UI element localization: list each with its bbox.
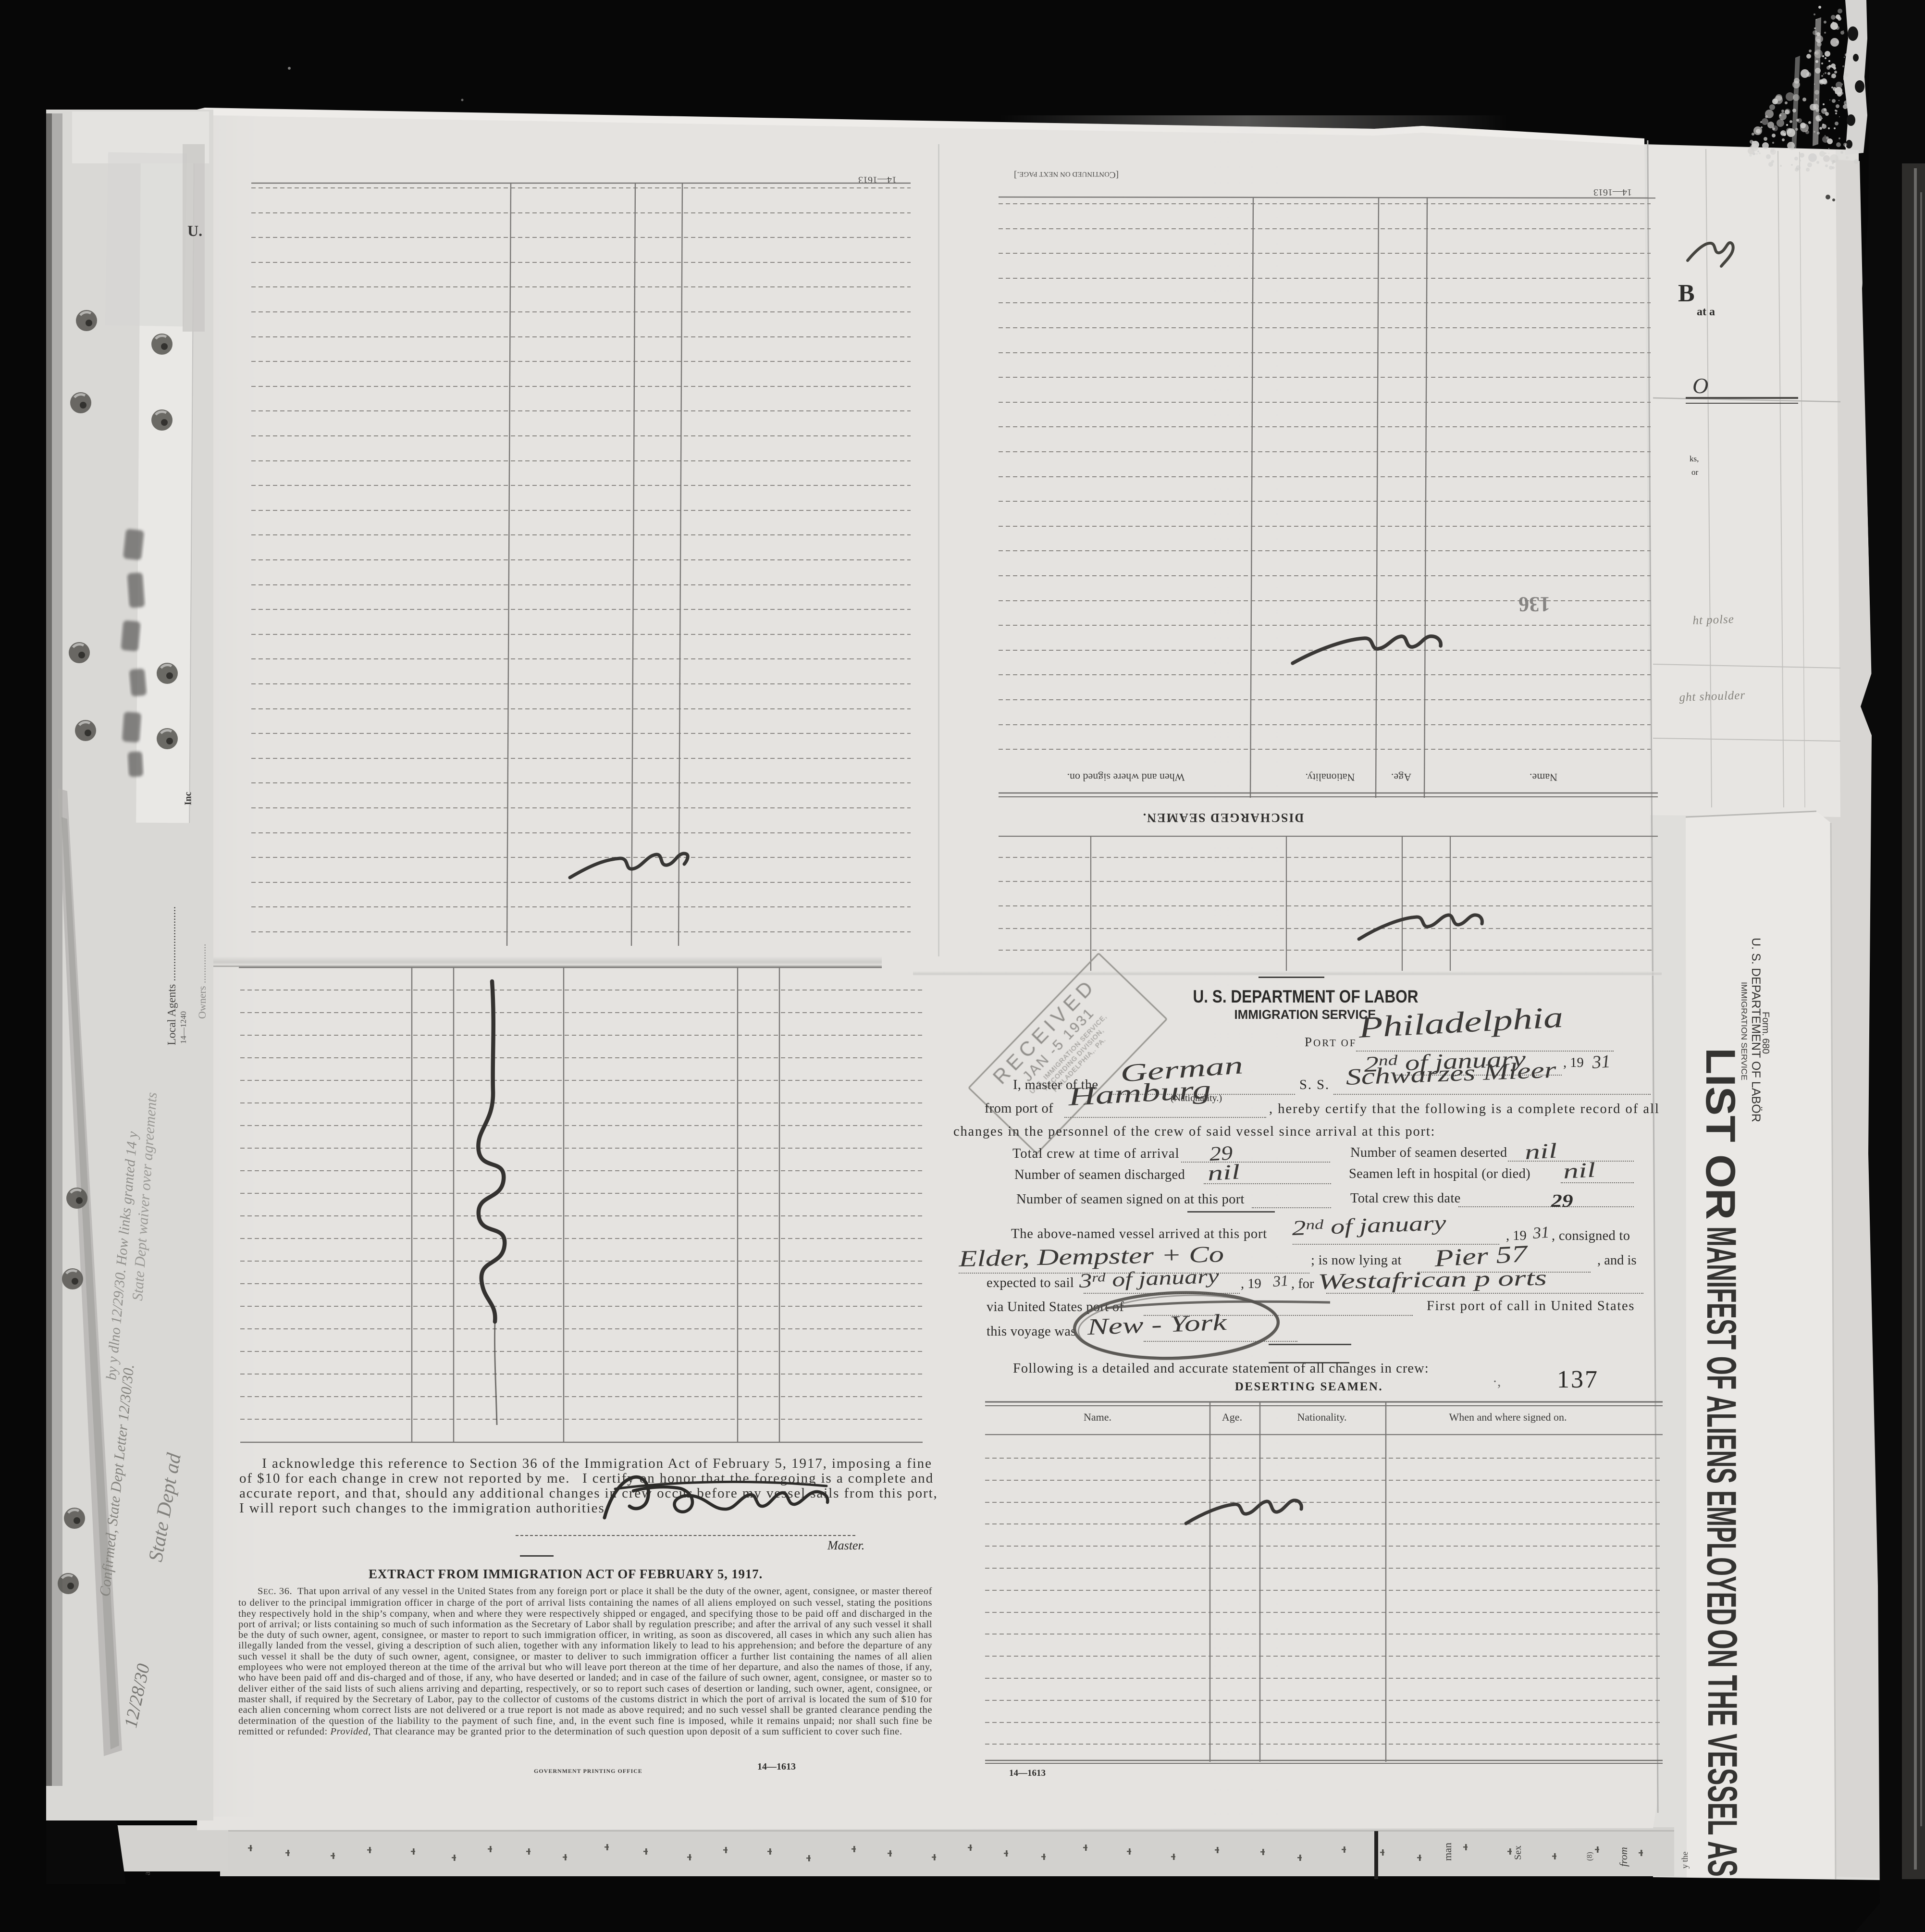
svg-text:U. S. DEPARTEMENT OF LABÖR: U. S. DEPARTEMENT OF LABÖR <box>1749 938 1763 1122</box>
svg-text:IMMIGRATION SERVICE: IMMIGRATION SERVICE <box>1234 1007 1376 1022</box>
svg-text:LIST OR: LIST OR <box>1697 1048 1743 1220</box>
svg-text:U. S. DEPARTMENT OF LABOR: U. S. DEPARTMENT OF LABOR <box>1193 987 1419 1006</box>
svg-text:MANIFEST OF ALIENS EMPLOYED: MANIFEST OF ALIENS EMPLOYED <box>1698 1226 1744 1625</box>
